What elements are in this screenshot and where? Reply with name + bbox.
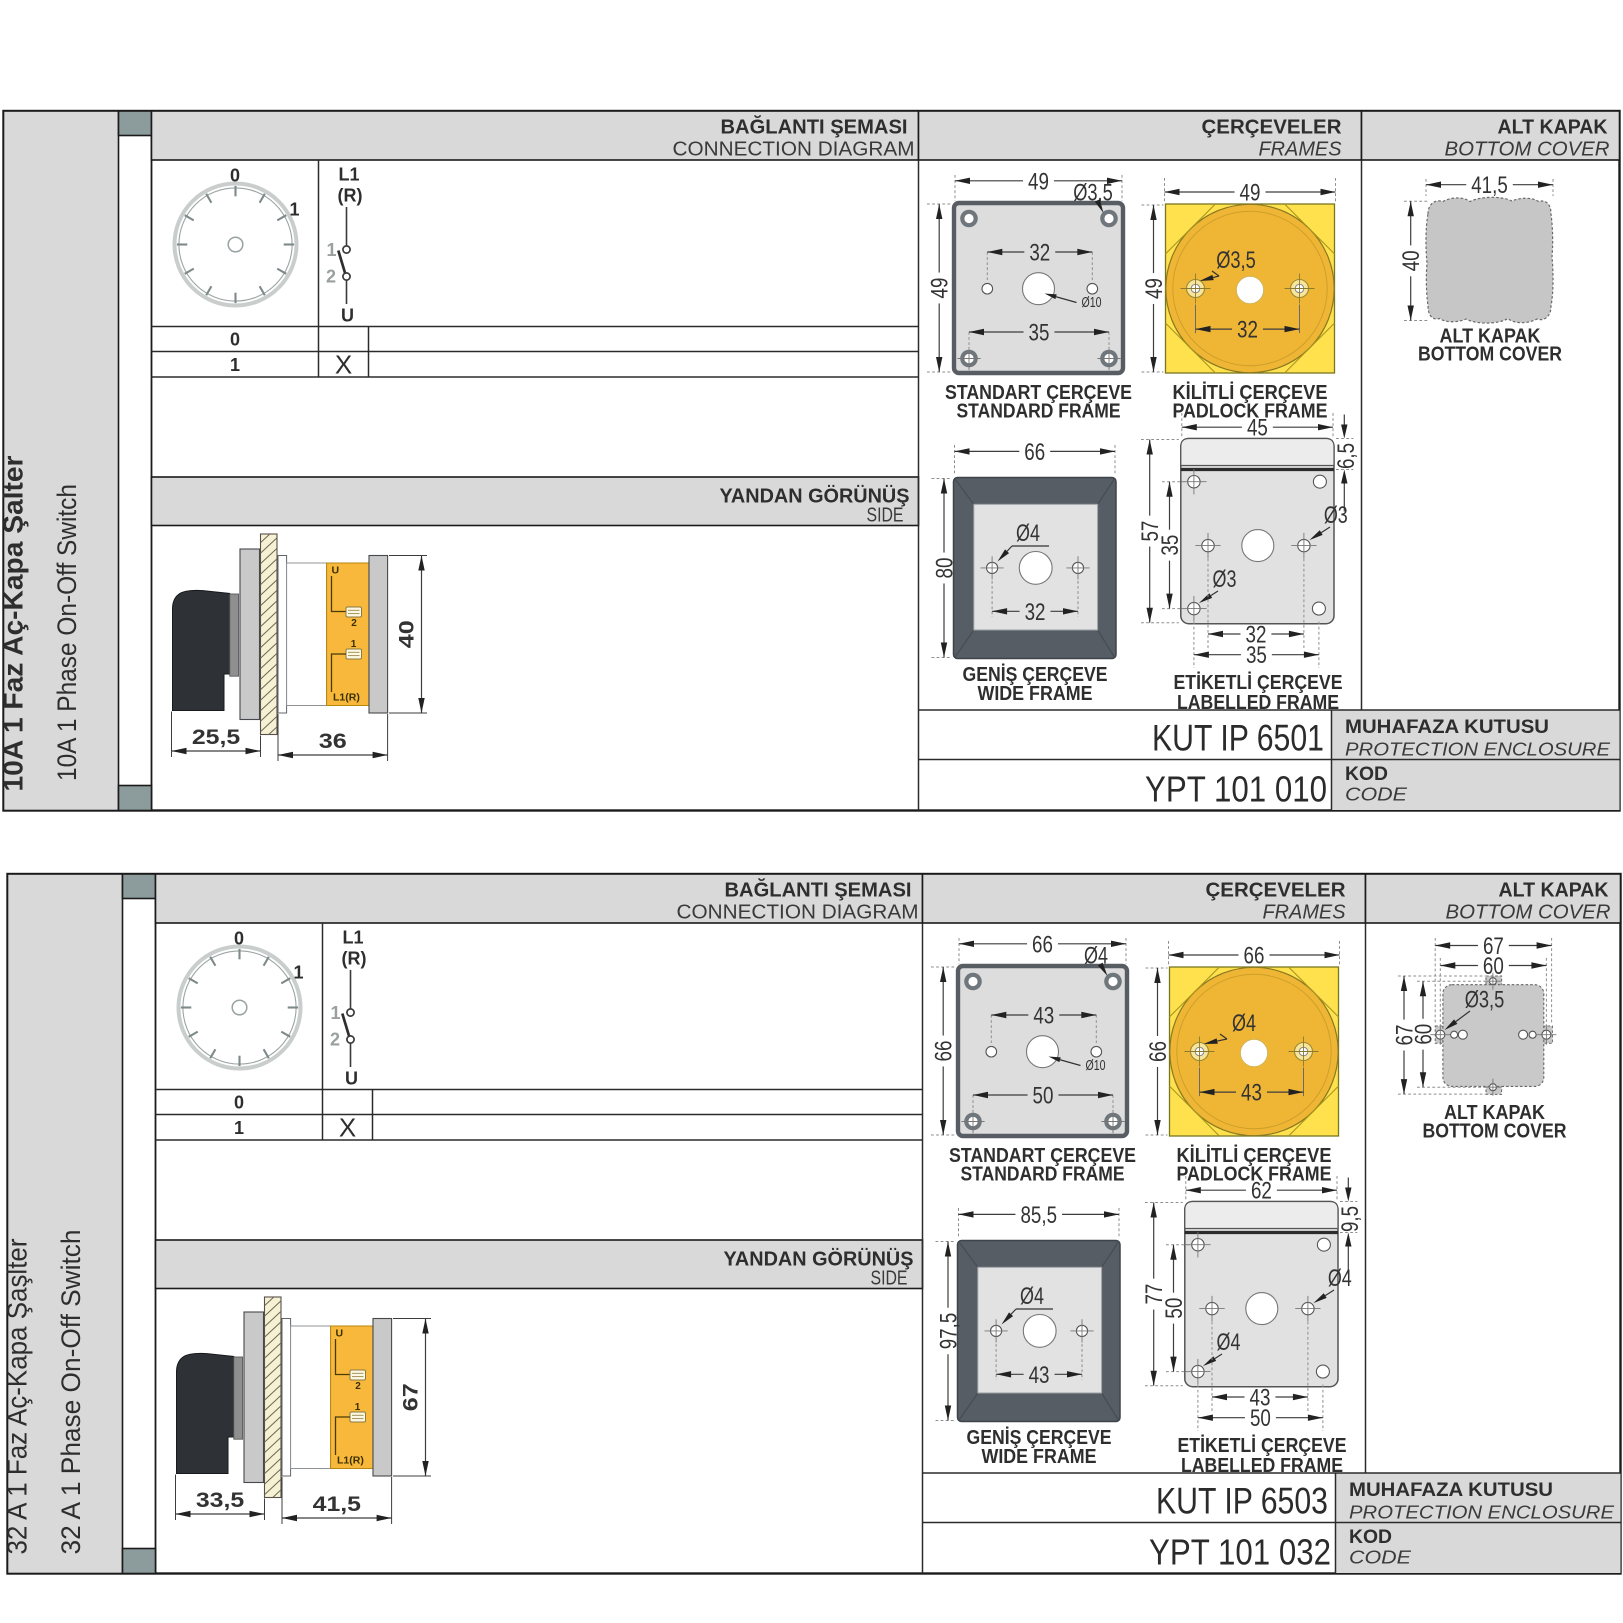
svg-text:33,5: 33,5 — [196, 1489, 245, 1512]
svg-text:X: X — [335, 350, 352, 380]
svg-text:Ø4: Ø4 — [1016, 520, 1040, 547]
svg-text:PROTECTION ENCLOSURE: PROTECTION ENCLOSURE — [1345, 739, 1611, 760]
svg-text:ÇERÇEVELER: ÇERÇEVELER — [1206, 880, 1347, 902]
svg-text:U: U — [332, 565, 340, 577]
svg-text:X: X — [339, 1113, 356, 1143]
svg-text:49: 49 — [1141, 278, 1168, 299]
svg-text:66: 66 — [931, 1041, 958, 1062]
svg-text:1: 1 — [234, 1118, 244, 1138]
svg-text:BAĞLANTI ŞEMASI: BAĞLANTI ŞEMASI — [725, 878, 912, 902]
svg-text:CONNECTION DIAGRAM: CONNECTION DIAGRAM — [673, 139, 915, 161]
svg-text:Ø4: Ø4 — [1328, 1265, 1352, 1292]
svg-text:U: U — [341, 306, 354, 326]
svg-text:67: 67 — [400, 1383, 423, 1411]
svg-text:1: 1 — [293, 963, 303, 983]
svg-text:KUT IP 6503: KUT IP 6503 — [1156, 1481, 1328, 1522]
svg-text:32 A 1 Faz Aç-Kapa Şaşlter: 32 A 1 Faz Aç-Kapa Şaşlter — [2, 1239, 33, 1555]
svg-text:Ø10: Ø10 — [1082, 295, 1102, 311]
svg-text:L1: L1 — [342, 928, 363, 948]
svg-text:66: 66 — [1244, 943, 1265, 970]
svg-text:0: 0 — [230, 330, 240, 350]
svg-text:CODE: CODE — [1345, 784, 1408, 805]
svg-text:32: 32 — [1029, 240, 1050, 267]
svg-text:1: 1 — [351, 639, 357, 650]
svg-text:YPT 101 032: YPT 101 032 — [1149, 1532, 1331, 1573]
svg-text:U: U — [336, 1328, 344, 1340]
svg-text:60: 60 — [1411, 1024, 1438, 1045]
svg-text:ALT KAPAK: ALT KAPAK — [1499, 880, 1610, 902]
svg-text:ALT KAPAK: ALT KAPAK — [1498, 117, 1609, 139]
svg-text:YPT 101 010: YPT 101 010 — [1145, 769, 1327, 810]
svg-text:STANDARD FRAME: STANDARD FRAME — [957, 401, 1121, 423]
svg-text:0: 0 — [230, 166, 240, 186]
svg-text:41,5: 41,5 — [1471, 172, 1508, 199]
svg-text:40: 40 — [396, 620, 419, 648]
svg-text:32: 32 — [1025, 599, 1046, 626]
svg-text:0: 0 — [234, 929, 244, 949]
svg-text:1: 1 — [230, 355, 240, 375]
svg-text:PROTECTION ENCLOSURE: PROTECTION ENCLOSURE — [1349, 1502, 1615, 1523]
svg-text:40: 40 — [1398, 250, 1425, 271]
svg-text:Ø3,5: Ø3,5 — [1073, 180, 1113, 207]
svg-text:BOTTOM COVER: BOTTOM COVER — [1445, 139, 1610, 161]
svg-text:(R): (R) — [338, 186, 363, 206]
svg-text:2: 2 — [326, 267, 336, 287]
svg-text:2: 2 — [330, 1030, 340, 1050]
svg-text:85,5: 85,5 — [1021, 1202, 1058, 1229]
svg-text:32: 32 — [1237, 317, 1258, 344]
svg-text:Ø10: Ø10 — [1086, 1058, 1106, 1074]
svg-text:ETİKETLİ ÇERÇEVE: ETİKETLİ ÇERÇEVE — [1174, 671, 1343, 694]
svg-text:SIDE: SIDE — [871, 1268, 908, 1290]
svg-text:BOTTOM COVER: BOTTOM COVER — [1423, 1121, 1567, 1143]
svg-text:Ø3,5: Ø3,5 — [1465, 987, 1505, 1014]
svg-text:FRAMES: FRAMES — [1259, 139, 1343, 161]
svg-text:Ø4: Ø4 — [1217, 1329, 1241, 1356]
svg-text:Ø3: Ø3 — [1213, 566, 1237, 593]
svg-text:Ø4: Ø4 — [1020, 1283, 1044, 1310]
svg-text:6,5: 6,5 — [1333, 443, 1360, 469]
svg-text:1: 1 — [355, 1402, 361, 1413]
svg-text:U: U — [345, 1069, 358, 1089]
svg-text:97,5: 97,5 — [936, 1313, 963, 1350]
svg-text:1: 1 — [289, 200, 299, 220]
svg-text:2: 2 — [351, 618, 357, 629]
svg-text:25,5: 25,5 — [192, 726, 241, 749]
svg-text:SIDE: SIDE — [867, 505, 904, 527]
svg-text:9,5: 9,5 — [1337, 1206, 1364, 1232]
svg-text:KOD: KOD — [1345, 764, 1388, 785]
svg-text:WIDE FRAME: WIDE FRAME — [978, 683, 1093, 705]
svg-text:KUT IP 6501: KUT IP 6501 — [1152, 718, 1324, 759]
svg-text:WIDE FRAME: WIDE FRAME — [982, 1446, 1097, 1468]
svg-text:49: 49 — [927, 278, 954, 299]
svg-text:35: 35 — [1246, 642, 1267, 669]
svg-text:45: 45 — [1247, 415, 1268, 442]
svg-text:49: 49 — [1028, 168, 1049, 195]
svg-text:50: 50 — [1161, 1298, 1188, 1319]
svg-text:32 A 1 Phase On-Off Switch: 32 A 1 Phase On-Off Switch — [56, 1230, 86, 1555]
svg-text:L1(R): L1(R) — [333, 692, 360, 704]
svg-text:ETİKETLİ ÇERÇEVE: ETİKETLİ ÇERÇEVE — [1178, 1434, 1347, 1457]
svg-text:2: 2 — [355, 1381, 361, 1392]
svg-text:Ø4: Ø4 — [1084, 943, 1108, 970]
svg-text:BOTTOM COVER: BOTTOM COVER — [1418, 344, 1562, 366]
svg-text:41,5: 41,5 — [313, 1493, 362, 1516]
svg-text:10A 1 Phase On-Off Switch: 10A 1 Phase On-Off Switch — [52, 484, 82, 781]
svg-text:MUHAFAZA KUTUSU: MUHAFAZA KUTUSU — [1345, 717, 1549, 738]
svg-text:FRAMES: FRAMES — [1263, 902, 1347, 924]
svg-text:L1: L1 — [338, 165, 359, 185]
svg-text:CONNECTION DIAGRAM: CONNECTION DIAGRAM — [677, 902, 919, 924]
svg-text:MUHAFAZA KUTUSU: MUHAFAZA KUTUSU — [1349, 1480, 1553, 1501]
svg-text:STANDARD FRAME: STANDARD FRAME — [961, 1164, 1125, 1186]
svg-text:ÇERÇEVELER: ÇERÇEVELER — [1202, 117, 1343, 139]
svg-text:36: 36 — [319, 730, 347, 753]
svg-text:35: 35 — [1029, 320, 1050, 347]
svg-text:66: 66 — [1032, 931, 1053, 958]
svg-text:KOD: KOD — [1349, 1527, 1392, 1548]
svg-text:L1(R): L1(R) — [337, 1455, 364, 1467]
svg-text:(R): (R) — [342, 949, 367, 969]
svg-text:66: 66 — [1024, 439, 1045, 466]
svg-text:62: 62 — [1251, 1178, 1272, 1205]
svg-text:CODE: CODE — [1349, 1547, 1412, 1568]
svg-text:49: 49 — [1240, 180, 1261, 207]
svg-text:1: 1 — [326, 240, 336, 260]
svg-text:50: 50 — [1250, 1405, 1271, 1432]
svg-text:50: 50 — [1033, 1083, 1054, 1110]
svg-text:80: 80 — [932, 558, 959, 579]
svg-text:66: 66 — [1145, 1041, 1172, 1062]
svg-text:43: 43 — [1029, 1362, 1050, 1389]
svg-text:43: 43 — [1033, 1003, 1054, 1030]
svg-text:BAĞLANTI ŞEMASI: BAĞLANTI ŞEMASI — [721, 115, 908, 139]
svg-text:Ø4: Ø4 — [1232, 1010, 1256, 1037]
svg-text:Ø3: Ø3 — [1324, 502, 1348, 529]
svg-text:43: 43 — [1241, 1080, 1262, 1107]
svg-text:0: 0 — [234, 1093, 244, 1113]
svg-text:35: 35 — [1157, 535, 1184, 556]
svg-text:1: 1 — [330, 1003, 340, 1023]
svg-text:BOTTOM COVER: BOTTOM COVER — [1446, 902, 1611, 924]
svg-text:Ø3,5: Ø3,5 — [1216, 247, 1256, 274]
svg-text:10A 1 Faz Aç-Kapa Şalter: 10A 1 Faz Aç-Kapa Şalter — [0, 455, 29, 791]
